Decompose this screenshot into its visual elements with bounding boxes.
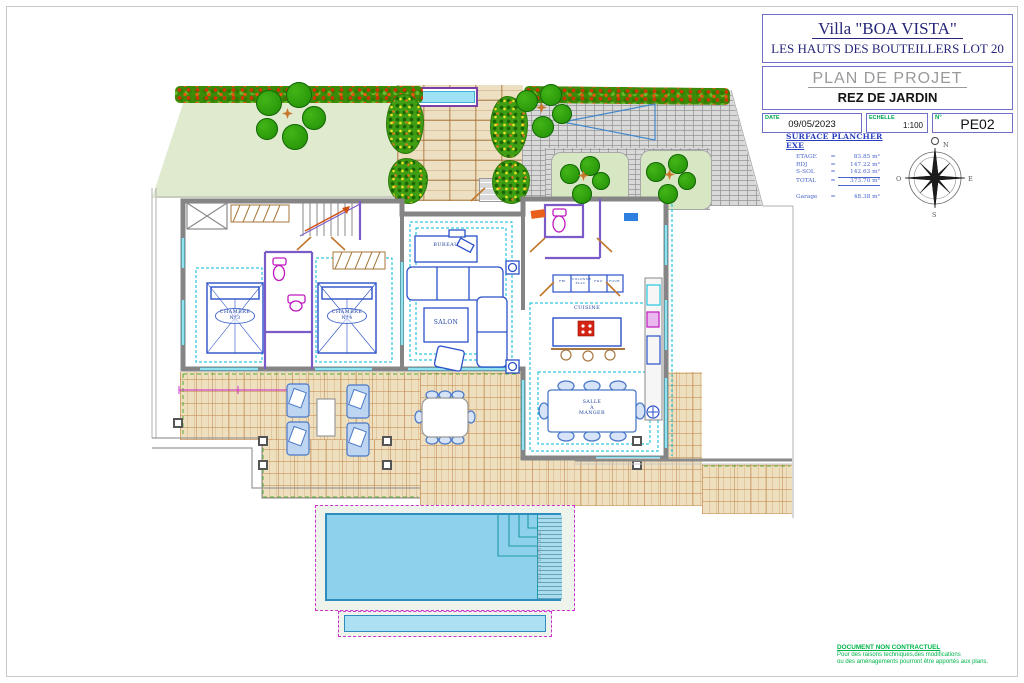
date-value: 09/05/2023	[763, 119, 861, 130]
tree-cluster	[644, 154, 704, 206]
surface-row: RDJ = 147.22 m²	[786, 162, 896, 170]
green-dashed-lines	[183, 374, 790, 497]
wall-counter	[645, 278, 662, 420]
date-cell: DATE 09/05/2023	[762, 113, 862, 133]
title-block: Villa "BOA VISTA" LES HAUTS DES BOUTEILL…	[762, 14, 1013, 133]
villa-subtitle: LES HAUTS DES BOUTEILLERS LOT 20	[765, 41, 1010, 57]
room-label-cuisine: CUISINE	[567, 306, 607, 312]
radiator-marker-blue	[624, 213, 638, 221]
compass-s: S	[932, 211, 936, 219]
title-box-project: Villa "BOA VISTA" LES HAUTS DES BOUTEILL…	[762, 14, 1013, 63]
floor-title: REZ DE JARDIN	[765, 90, 1010, 105]
compass-star	[905, 148, 965, 208]
cabinet-label: F&O	[590, 280, 607, 283]
surface-row-garage: Garage = 48.38 m²	[786, 194, 896, 202]
outdoor-lounge	[287, 384, 369, 456]
surface-row: ETAGE = 83.85 m²	[786, 154, 896, 162]
tree-cluster	[558, 156, 618, 206]
cabinet-label: FRI	[554, 280, 571, 283]
disclaimer-title: DOCUMENT NON CONTRACTUEL	[837, 644, 1013, 652]
compass-n: N	[943, 141, 949, 149]
villa-title: Villa "BOA VISTA"	[765, 19, 1010, 39]
compass-o: O	[896, 175, 901, 183]
surface-row: S-SOL = 142.63 m²	[786, 169, 896, 178]
cabinet-label: COLONNE PLAC	[572, 278, 589, 285]
scale-value: 1:100	[867, 121, 923, 130]
room-label-salle-a-manger: SALLE À MANGER	[566, 400, 618, 417]
outdoor-dining	[415, 391, 475, 444]
room-label-chambre3: CHAMBREN°3	[207, 308, 263, 324]
compass-e: E	[968, 175, 973, 183]
title-box-plan: PLAN DE PROJET REZ DE JARDIN	[762, 66, 1013, 110]
cabinet-label: FOUR	[606, 280, 623, 283]
number-label: N°	[935, 115, 942, 121]
disclaimer-line: ou des aménagements pourront être apport…	[837, 659, 1013, 667]
tree-cluster	[514, 84, 584, 142]
compass-north-ring	[932, 138, 939, 145]
drawing-sheet: VOLET IMMERGÉ	[0, 0, 1024, 683]
dimension-line	[179, 386, 305, 394]
kitchen-island	[551, 318, 625, 361]
room-label-chambre4: CHAMBREN°4	[319, 308, 375, 324]
plan-title: PLAN DE PROJET	[765, 70, 1010, 88]
disclaimer-line: Pour des raisons techniques,des modifica…	[837, 652, 1013, 660]
room-label-salon: SALON	[424, 320, 468, 327]
terrace-steps	[152, 438, 420, 498]
room-label-bureau: BUREAU	[415, 243, 477, 249]
disclaimer: DOCUMENT NON CONTRACTUEL Pour des raison…	[837, 644, 1013, 667]
surface-title: SURFACE PLANCHER EXE	[786, 132, 896, 150]
tree-cluster	[250, 82, 340, 152]
compass-rose: N E S O	[893, 130, 977, 220]
surface-table: SURFACE PLANCHER EXE ETAGE = 83.85 m² RD…	[786, 132, 896, 202]
surface-row-total: TOTAL = 373.70 m²	[786, 178, 896, 187]
pool-step-lines	[498, 515, 537, 556]
